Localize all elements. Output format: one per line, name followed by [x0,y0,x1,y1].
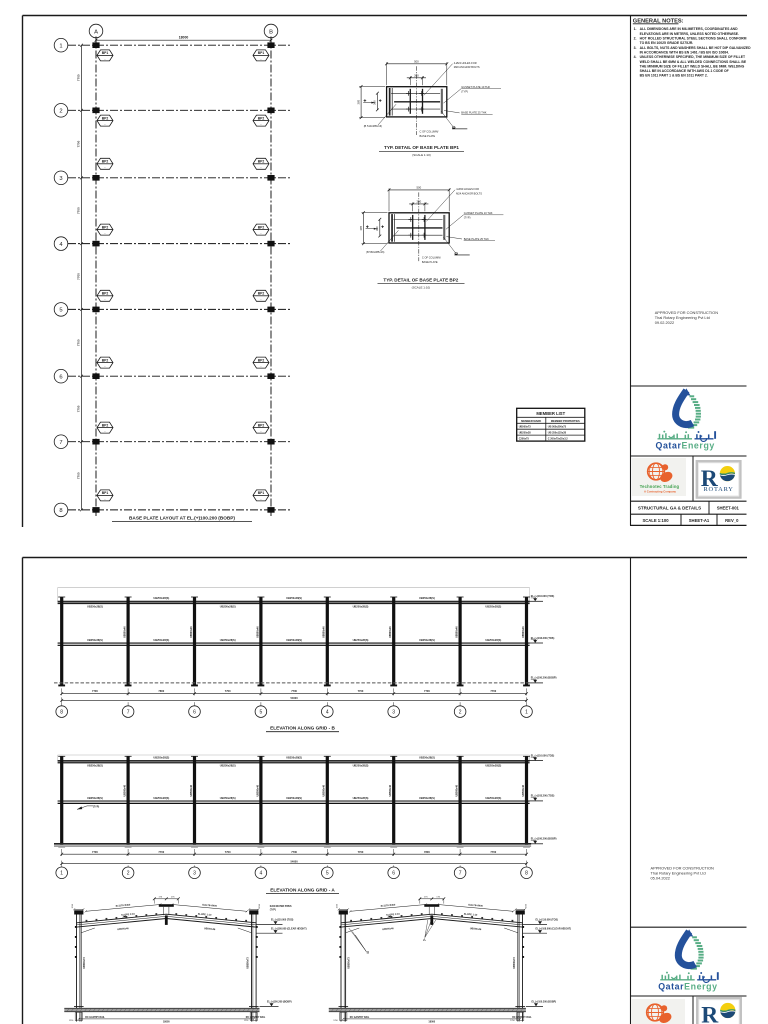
svg-text:M20 ANCHOR BOLTS: M20 ANCHOR BOLTS [454,65,480,69]
svg-text:5: 5 [59,308,62,314]
svg-text:QatarEnergy: QatarEnergy [656,440,715,450]
svg-text:EL.(+)103.200 (TOS): EL.(+)103.200 (TOS) [531,795,555,798]
svg-text:UB500x73: UB500x73 [348,957,351,969]
svg-text:UB250x28(S): UB250x28(S) [220,638,236,642]
svg-text:UB500x46: UB500x46 [522,626,525,638]
svg-text:09.02.2022: 09.02.2022 [655,320,674,325]
svg-text:UB500x73: UB500x73 [247,957,250,969]
svg-text:EL.(+)100.200 (BOBP): EL.(+)100.200 (BOBP) [531,677,557,680]
svg-text:SHALL BE IN ACCORDANCE WITH AW: SHALL BE IN ACCORDANCE WITH AWS D1.1 COD… [640,69,729,73]
svg-text:3: 3 [59,176,62,182]
svg-text:7700: 7700 [225,689,231,693]
svg-text:EL.(+)100.200 (BOBP): EL.(+)100.200 (BOBP) [531,838,557,841]
svg-text:UB500x46: UB500x46 [124,626,127,638]
svg-text:5: 5 [260,710,263,716]
svg-text:-: - [104,364,105,368]
svg-text:UB250x28(S): UB250x28(S) [153,796,169,800]
svg-text:7700: 7700 [77,74,81,81]
svg-text:-: - [260,364,261,368]
svg-text:A Contracting Company: A Contracting Company [644,489,676,493]
svg-text:TYP. DETAIL OF BASE PLATE BP1: TYP. DETAIL OF BASE PLATE BP1 [384,145,459,150]
svg-text:BP2: BP2 [102,292,109,296]
svg-text:UB500x46: UB500x46 [323,784,326,796]
svg-text:UB250x28(S): UB250x28(S) [153,756,169,760]
svg-text:UB500x46: UB500x46 [256,784,259,796]
svg-text:BASE PLATE: BASE PLATE [420,134,436,138]
svg-text:-: - [104,497,105,501]
svg-text:UB250x28(S): UB250x28(S) [87,796,103,800]
svg-text:UB500x46: UB500x46 [190,626,193,638]
svg-text:5: 5 [326,871,329,877]
svg-text:(B 510x385x16): (B 510x385x16) [364,124,382,128]
svg-text:-: - [104,429,105,433]
svg-text:UB250x28(S): UB250x28(S) [286,638,302,642]
svg-text:7800: 7800 [158,689,164,693]
svg-text:EL.(+)100.200 (BOBP): EL.(+)100.200 (BOBP) [267,1001,292,1004]
svg-text:RC GANTRY RAIL: RC GANTRY RAIL [512,1016,532,1019]
svg-text:C 200x75x25x3.2: C 200x75x25x3.2 [548,437,568,440]
svg-text:UB500x46: UB500x46 [456,626,459,638]
svg-text:7: 7 [459,871,462,877]
svg-text:BP2: BP2 [258,160,265,164]
svg-text:UB250x28(S): UB250x28(S) [286,596,302,600]
svg-text:7800: 7800 [424,850,430,854]
svg-text:7700: 7700 [424,689,430,693]
svg-text:UNLESS OTHERWISE SPECIFIED, TH: UNLESS OTHERWISE SPECIFIED, THE MINIMUM … [640,55,746,59]
svg-text:-: - [260,122,261,126]
svg-text:8: 8 [60,710,63,716]
svg-text:7700: 7700 [490,850,496,854]
svg-text:EL.(+)100.200 (BOBP): EL.(+)100.200 (BOBP) [532,1001,557,1004]
svg-text:UB500x73: UB500x73 [519,426,532,429]
svg-text:UB500x46: UB500x46 [389,784,392,796]
svg-text:4: 4 [326,710,329,716]
svg-text:UB500x46: UB500x46 [323,626,326,638]
svg-text:200: 200 [414,73,419,77]
svg-text:RAIN WATER PIPES: RAIN WATER PIPES [270,905,292,908]
svg-text:7700: 7700 [158,850,164,854]
svg-text:6: 6 [193,710,196,716]
svg-text:18000: 18000 [179,36,189,40]
svg-text:WELD SHALL BE 6MM & ALL WELDED: WELD SHALL BE 6MM & ALL WELDED CONNECTIO… [640,60,747,64]
svg-text:EL.(+)110.000 (TOS): EL.(+)110.000 (TOS) [531,595,555,598]
svg-text:ALL BOLTS, NUTS AND WASHERS SH: ALL BOLTS, NUTS AND WASHERS SHALL BE HOT… [640,46,752,50]
svg-text:TYP. DETAIL OF BASE PLATE BP2: TYP. DETAIL OF BASE PLATE BP2 [383,278,458,283]
svg-text:3: 3 [193,871,196,877]
svg-text:UB250x28(S): UB250x28(S) [485,764,501,768]
svg-text:M24 ANCHOR BOLTS: M24 ANCHOR BOLTS [456,191,482,195]
svg-text:UB250x28(S): UB250x28(S) [153,638,169,642]
svg-text:-: - [104,231,105,235]
svg-text:BP2: BP2 [258,358,265,362]
svg-text:EL.(+)108.000 (CLEAR HEIGHT): EL.(+)108.000 (CLEAR HEIGHT) [536,927,572,930]
svg-text:UB250x28(S): UB250x28(S) [485,638,501,642]
svg-text:R: R [701,1003,719,1024]
svg-text:500: 500 [416,186,421,190]
svg-text:UB250x28(S): UB250x28(S) [485,796,501,800]
svg-text:-: - [260,165,261,169]
svg-text:UB250x28(S): UB250x28(S) [419,756,435,760]
svg-text:6: 6 [392,871,395,877]
svg-text:QatarEnergy: QatarEnergy [658,981,717,991]
svg-text:BP2: BP2 [102,225,109,229]
svg-text:BP2: BP2 [258,225,265,229]
svg-text:A: A [423,937,426,942]
svg-text:GUSSET PLATE 10 THK: GUSSET PLATE 10 THK [461,85,490,89]
svg-text:REV_0: REV_0 [725,518,739,523]
svg-text:C OF COLUMN/: C OF COLUMN/ [420,129,439,133]
svg-text:C200x75: C200x75 [519,437,530,440]
svg-text:8: 8 [59,508,62,514]
svg-text:-: - [260,429,261,433]
svg-text:7700: 7700 [291,689,297,693]
svg-text:EL.(+)103.200 (TOS): EL.(+)103.200 (TOS) [531,637,555,640]
svg-text:UB500x46: UB500x46 [456,784,459,796]
svg-text:BASE PLATE 25 THK: BASE PLATE 25 THK [461,111,486,115]
svg-text:UB500x73: UB500x73 [83,957,86,969]
svg-text:STRUCTURAL GA & DETAILS: STRUCTURAL GA & DETAILS [638,506,701,511]
svg-text:7700: 7700 [77,207,81,214]
svg-text:ELEVATIONS ARE IN METERS, UNLE: ELEVATIONS ARE IN METERS, UNLESS NOTED O… [640,32,739,36]
svg-text:(SCALE 1:10): (SCALE 1:10) [412,153,431,157]
svg-text:SCALE 1:100: SCALE 1:100 [642,518,669,523]
svg-text:UB250x28(S): UB250x28(S) [286,796,302,800]
svg-text:7700: 7700 [77,472,81,479]
svg-text:385: 385 [359,225,363,230]
svg-text:-: - [104,122,105,126]
svg-text:GUSSET PLATE 10 THK: GUSSET PLATE 10 THK [464,211,493,215]
svg-text:7700: 7700 [490,689,496,693]
svg-text:B: B [269,29,273,35]
svg-text:(B 560x385x16): (B 560x385x16) [366,250,384,254]
svg-text:7700: 7700 [291,850,297,854]
svg-text:B: B [366,950,369,955]
svg-text:4: 4 [260,871,263,877]
svg-text:UB250x28(S): UB250x28(S) [87,638,103,642]
svg-text:BP2: BP2 [102,116,109,120]
svg-text:7700: 7700 [77,405,81,412]
svg-text:UB250x28(S): UB250x28(S) [286,756,302,760]
svg-text:-: - [104,165,105,169]
svg-text:BP2: BP2 [102,358,109,362]
svg-text:3.: 3. [634,46,637,50]
svg-text:C OF COLUMN/: C OF COLUMN/ [422,255,441,259]
svg-text:(TYP): (TYP) [270,909,276,911]
svg-text:UB500x46: UB500x46 [190,784,193,796]
svg-text:18000: 18000 [163,1020,170,1023]
svg-text:200: 200 [416,200,421,204]
svg-text:BS EN 1011 PART 1 & BS EN 1011: BS EN 1011 PART 1 & BS EN 1011 PART 2. [640,74,708,78]
svg-text:500: 500 [414,59,419,63]
svg-text:BP1: BP1 [258,51,265,55]
svg-text:EL.(+)108.000 (CLEAR HEIGHT): EL.(+)108.000 (CLEAR HEIGHT) [271,927,307,930]
svg-text:MEMBER LIST: MEMBER LIST [536,411,565,416]
svg-text:BP1: BP1 [102,51,109,55]
svg-text:54000: 54000 [290,696,298,700]
svg-text:8: 8 [525,871,528,877]
svg-text:BP1: BP1 [102,491,109,495]
svg-text:-: - [260,497,261,501]
svg-text:BP2: BP2 [258,116,265,120]
svg-text:UB250x28(S): UB250x28(S) [353,796,369,800]
svg-text:2: 2 [459,710,462,716]
svg-text:SHEET-001: SHEET-001 [717,506,740,511]
svg-text:BP1: BP1 [258,491,265,495]
svg-text:-: - [260,57,261,61]
svg-text:UB250x28(S): UB250x28(S) [353,638,369,642]
svg-text:7700: 7700 [358,689,364,693]
svg-text:RC GANTRY RAIL: RC GANTRY RAIL [350,1016,370,1019]
svg-text:1: 1 [60,871,63,877]
svg-text:2.: 2. [634,37,637,41]
svg-text:1: 1 [525,710,528,716]
svg-text:BP2: BP2 [258,292,265,296]
svg-text:EL.(+)110.000 (TOS): EL.(+)110.000 (TOS) [536,919,559,922]
svg-text:Technotec Trading: Technotec Trading [640,484,680,489]
svg-text:ELEVATION ALONG GRID - B: ELEVATION ALONG GRID - B [270,726,335,731]
svg-text:7: 7 [59,440,62,446]
svg-text:BP2: BP2 [102,423,109,427]
svg-text:TO BS EN 10025 GRADE S275JR.: TO BS EN 10025 GRADE S275JR. [640,41,694,45]
svg-text:(TYP): (TYP) [93,806,99,809]
svg-text:UB250x28(S): UB250x28(S) [485,604,501,608]
svg-text:IN ACCORDANCE WITH BS EN 1461: IN ACCORDANCE WITH BS EN 1461 / BS EN IS… [640,50,729,54]
svg-text:ROTARY: ROTARY [703,486,733,493]
svg-text:UB250x28(S): UB250x28(S) [153,596,169,600]
svg-text:MEMBER MARK: MEMBER MARK [521,419,541,423]
svg-text:2: 2 [127,871,130,877]
svg-text:385: 385 [357,99,361,104]
svg-text:7700: 7700 [92,850,98,854]
svg-text:UB 250x125x28: UB 250x125x28 [548,432,567,435]
svg-text:7700: 7700 [358,850,364,854]
svg-text:A: A [94,29,98,35]
svg-text:ELEVATION ALONG GRID - A: ELEVATION ALONG GRID - A [270,887,335,892]
svg-text:UB250x28(S): UB250x28(S) [220,796,236,800]
svg-text:1: 1 [59,43,62,49]
svg-text:1.: 1. [634,27,637,31]
svg-text:6: 6 [59,374,62,380]
svg-text:UB500x46: UB500x46 [522,784,525,796]
svg-text:(TYP): (TYP) [461,89,468,93]
svg-text:-: - [104,297,105,301]
svg-text:4-Ø24 HOLES FOR: 4-Ø24 HOLES FOR [454,61,477,65]
svg-text:-: - [104,57,105,61]
svg-text:(SCALE 1:10): (SCALE 1:10) [412,286,431,290]
svg-text:-: - [260,231,261,235]
svg-text:UB250x28(S): UB250x28(S) [353,764,369,768]
svg-text:7700: 7700 [225,850,231,854]
svg-text:EL.(+)110.000 (TOS): EL.(+)110.000 (TOS) [531,754,555,757]
svg-text:BASE PLATE: BASE PLATE [422,260,438,264]
svg-text:7: 7 [127,710,130,716]
svg-text:HOT ROLLED STRUCTURAL STEEL SE: HOT ROLLED STRUCTURAL STEEL SECTIONS SHA… [640,37,747,41]
svg-text:7700: 7700 [92,689,98,693]
svg-text:BASE PLATE LAYOUT AT EL.(+)100: BASE PLATE LAYOUT AT EL.(+)100.200 (BOBP… [129,515,235,520]
svg-text:7700: 7700 [77,140,81,147]
svg-text:SHEET-A1: SHEET-A1 [689,518,710,523]
svg-text:RC GANTRY RAIL: RC GANTRY RAIL [246,1016,266,1019]
svg-text:UB250x28(S): UB250x28(S) [353,604,369,608]
svg-text:EL.(+)110.000 (TOS): EL.(+)110.000 (TOS) [271,919,294,922]
svg-text:7700: 7700 [77,339,81,346]
svg-text:UB250x28(S): UB250x28(S) [419,796,435,800]
svg-text:UB250x28(S): UB250x28(S) [220,604,236,608]
svg-text:4-Ø30 HOLES FOR: 4-Ø30 HOLES FOR [456,187,479,191]
svg-text:BP2: BP2 [102,160,109,164]
svg-text:UB500x46: UB500x46 [389,626,392,638]
svg-text:UB250x28(S): UB250x28(S) [419,596,435,600]
svg-text:UB250x28(S): UB250x28(S) [87,604,103,608]
svg-text:-: - [260,297,261,301]
svg-text:UB 500x200x73: UB 500x200x73 [548,426,567,429]
svg-text:UB250x28(S): UB250x28(S) [87,764,103,768]
svg-text:UB250x28: UB250x28 [519,432,532,435]
svg-text:UB500x73: UB500x73 [513,957,516,969]
svg-text:UB250x28(S): UB250x28(S) [419,638,435,642]
svg-text:UB500x46: UB500x46 [124,784,127,796]
svg-text:MEMBER PROPERTIES: MEMBER PROPERTIES [551,419,580,423]
svg-text:RC GANTRY RAIL: RC GANTRY RAIL [85,1016,105,1019]
svg-text:54000: 54000 [290,859,298,863]
svg-text:BP2: BP2 [258,423,265,427]
svg-text:18000: 18000 [428,1020,435,1023]
svg-text:UB500x46: UB500x46 [256,626,259,638]
svg-text:4.: 4. [634,55,637,59]
svg-text:2: 2 [59,109,62,115]
svg-text:ALL DIMENSIONS ARE IN MILIMETE: ALL DIMENSIONS ARE IN MILIMETERS, COORDI… [640,27,739,31]
svg-text:(TYP): (TYP) [464,215,471,219]
svg-text:7700: 7700 [77,273,81,280]
svg-text:05.04.2022: 05.04.2022 [651,876,670,881]
svg-text:THE MINIMUM SIZE OF FILLET WEL: THE MINIMUM SIZE OF FILLET WELD SHALL BE… [640,64,745,68]
svg-text:UB250x28(S): UB250x28(S) [220,764,236,768]
svg-text:3: 3 [392,710,395,716]
svg-text:BASE PLATE 25 THK: BASE PLATE 25 THK [464,237,489,241]
